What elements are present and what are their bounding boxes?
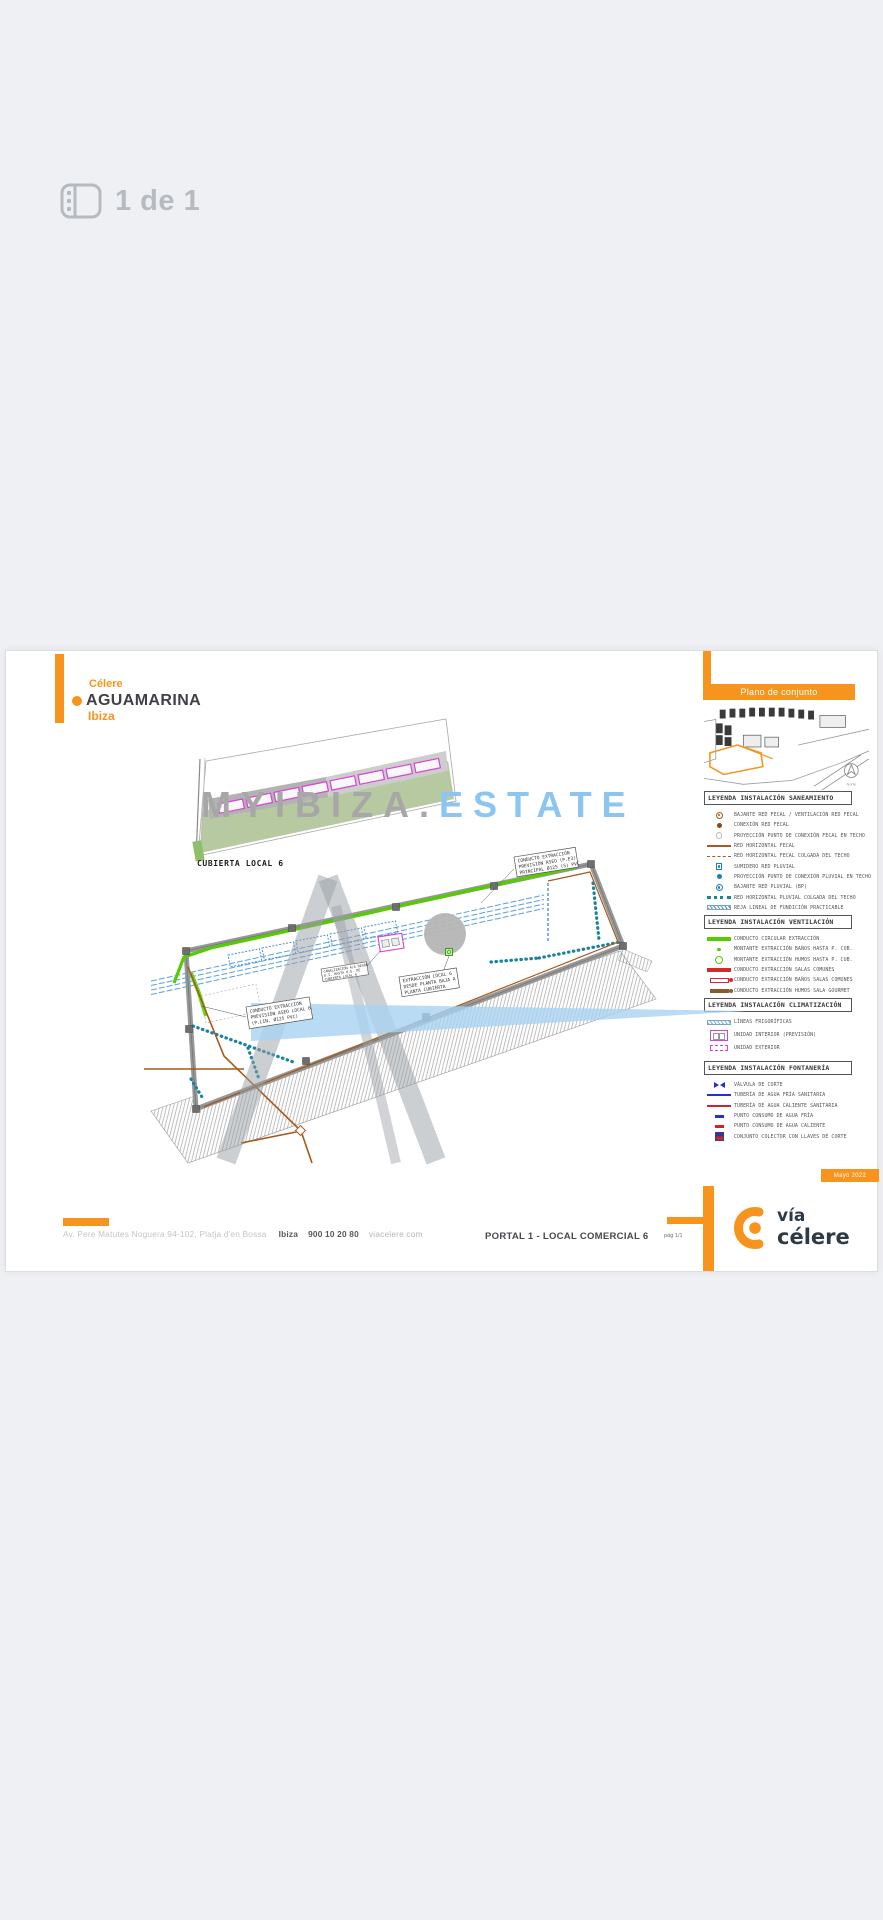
address-phone: 900 10 20 80 [308, 1229, 359, 1239]
floor-plan-drawing: CUBIERTA LOCAL 6 [96, 711, 756, 1181]
north-label: Norte [847, 781, 857, 786]
brand-project: AGUAMARINA [72, 692, 201, 710]
footer-divider-bar [703, 1186, 714, 1271]
brand-accent-bar [55, 654, 64, 723]
panel-accent-bar [703, 651, 711, 684]
watermark-part2: ESTATE [439, 784, 636, 825]
indoor-unit-symbol [378, 933, 404, 952]
address-city: Ibiza [279, 1229, 298, 1239]
brand-dot-icon [72, 696, 82, 706]
watermark-text: MYIBIZA.ESTATE [201, 784, 636, 826]
page-indicator-label: 1 de 1 [115, 185, 200, 218]
site-plan-title: Plano de conjunto [703, 684, 855, 700]
page-indicator[interactable]: 1 de 1 [60, 183, 200, 219]
address-website: viacelere.com [369, 1229, 423, 1239]
via-celere-logo: vía célere [726, 1201, 850, 1255]
page-number: pág 1/1 [664, 1233, 683, 1239]
brand-project-name: AGUAMARINA [86, 692, 201, 710]
thumbnails-icon [60, 183, 102, 219]
brand-celere: Célere [89, 678, 123, 690]
roof-plan-label: CUBIERTA LOCAL 6 [197, 859, 284, 868]
pdf-viewer-screen: 1 de 1 Célere AGUAMARINA Ibiza MYIBIZA.E… [0, 0, 883, 1920]
footer-accent-bar [63, 1218, 109, 1226]
plan-document-page: Célere AGUAMARINA Ibiza MYIBIZA.ESTATE [5, 650, 878, 1272]
via-celere-wordmark: vía célere [777, 1208, 850, 1248]
north-arrow-icon [844, 764, 858, 778]
date-badge: Mayo 2022 [821, 1169, 879, 1182]
watermark-part1: MYIBIZA. [201, 784, 439, 825]
footer-divider-arm [667, 1217, 703, 1224]
plan-title: PORTAL 1 - LOCAL COMERCIAL 6 [485, 1231, 648, 1242]
address-text: Av. Pere Matutes Noguera 94-102, Platja … [63, 1229, 267, 1239]
via-celere-crescent-icon [726, 1201, 772, 1255]
footer-address: Av. Pere Matutes Noguera 94-102, Platja … [63, 1229, 423, 1239]
